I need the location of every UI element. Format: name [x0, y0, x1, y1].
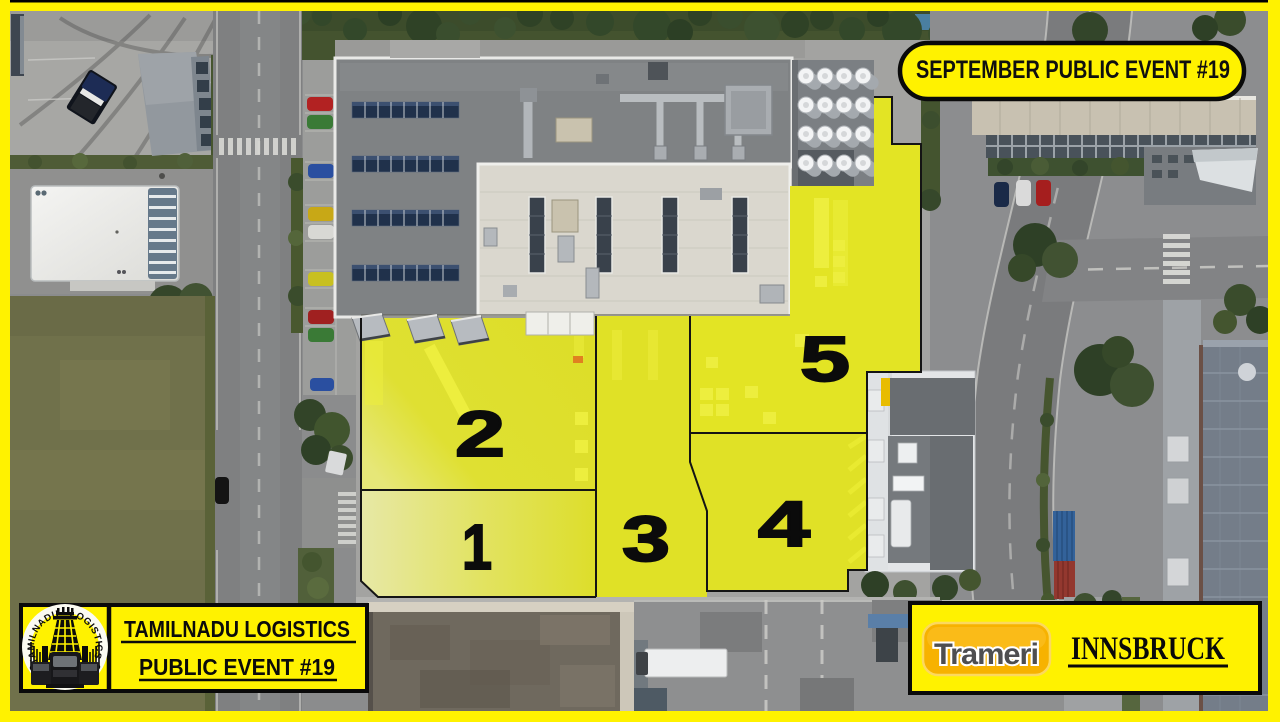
svg-text:PUBLIC EVENT #19: PUBLIC EVENT #19 — [139, 654, 335, 680]
svg-text:Trameri: Trameri — [934, 638, 1038, 671]
svg-text:SEPTEMBER PUBLIC EVENT #19: SEPTEMBER PUBLIC EVENT #19 — [916, 56, 1230, 84]
svg-text:3: 3 — [622, 503, 670, 575]
svg-text:4: 4 — [758, 488, 811, 560]
svg-text:5: 5 — [800, 323, 850, 395]
svg-text:2: 2 — [455, 398, 505, 470]
svg-text:INNSBRUCK: INNSBRUCK — [1071, 631, 1225, 667]
svg-text:1: 1 — [462, 511, 492, 583]
svg-text:TAMILNADU LOGISTICS: TAMILNADU LOGISTICS — [124, 616, 350, 642]
